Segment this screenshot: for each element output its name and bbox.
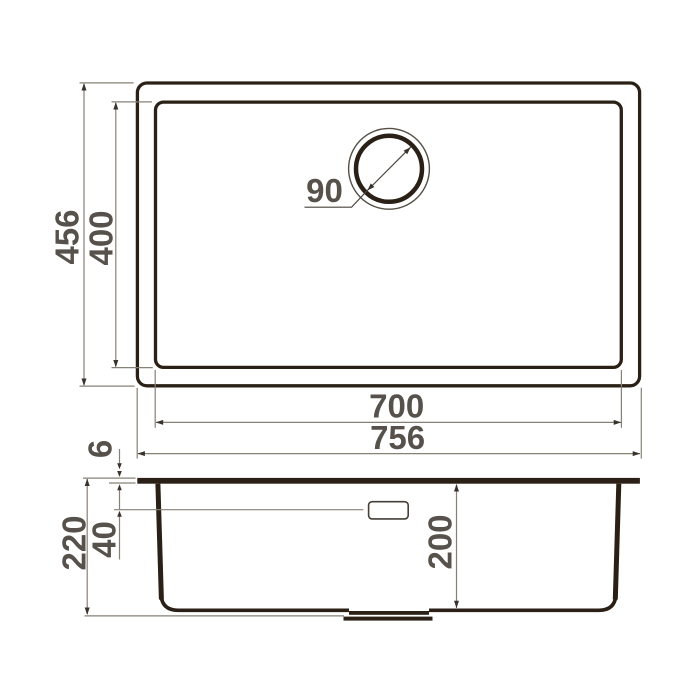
svg-text:456: 456 <box>49 209 86 264</box>
svg-text:756: 756 <box>370 419 425 456</box>
svg-text:6: 6 <box>82 440 119 458</box>
svg-text:90: 90 <box>306 172 343 209</box>
svg-text:200: 200 <box>422 514 459 569</box>
svg-text:40: 40 <box>86 521 123 558</box>
svg-text:400: 400 <box>82 210 119 265</box>
